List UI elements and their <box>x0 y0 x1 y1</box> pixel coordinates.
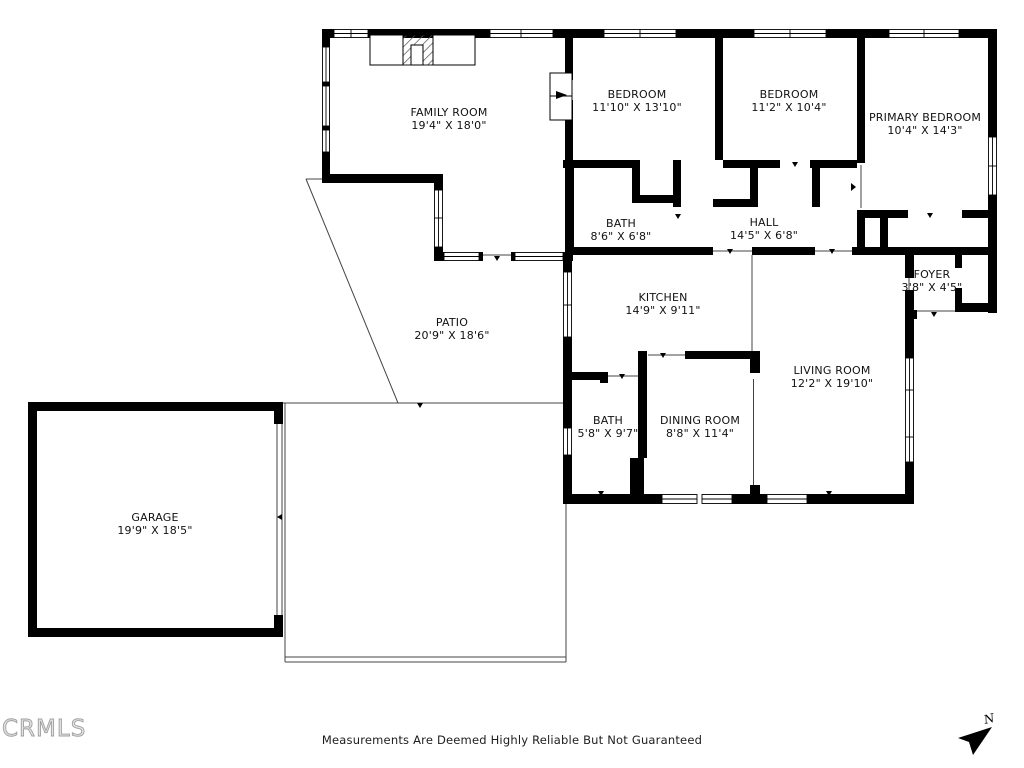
room-dims: 12'2" X 19'10" <box>791 377 874 390</box>
room-dims: 14'5" X 6'8" <box>730 229 798 242</box>
room-name: HALL <box>730 216 798 229</box>
room-dims: 14'9" X 9'11" <box>625 304 700 317</box>
fireplace <box>370 35 475 65</box>
room-name: LIVING ROOM <box>791 364 874 377</box>
room-label-living-room: LIVING ROOM 12'2" X 19'10" <box>791 364 874 390</box>
room-name: BATH <box>578 414 639 427</box>
room-label-bedroom-2: BEDROOM 11'2" X 10'4" <box>751 88 826 114</box>
room-label-primary-bedroom: PRIMARY BEDROOM 10'4" X 14'3" <box>869 111 981 137</box>
room-label-family-room: FAMILY ROOM 19'4" X 18'0" <box>410 106 487 132</box>
room-dims: 3'8" X 4'5" <box>902 281 963 294</box>
room-label-patio: PATIO 20'9" X 18'6" <box>414 316 489 342</box>
room-name: DINING ROOM <box>660 414 740 427</box>
room-name: BEDROOM <box>592 88 682 101</box>
north-label: N <box>981 711 996 727</box>
room-label-bedroom-1: BEDROOM 11'10" X 13'10" <box>592 88 682 114</box>
room-name: GARAGE <box>117 511 192 524</box>
room-name: KITCHEN <box>625 291 700 304</box>
room-label-kitchen: KITCHEN 14'9" X 9'11" <box>625 291 700 317</box>
room-label-dining-room: DINING ROOM 8'8" X 11'4" <box>660 414 740 440</box>
room-dims: 11'2" X 10'4" <box>751 101 826 114</box>
room-dims: 8'8" X 11'4" <box>660 427 740 440</box>
room-dims: 5'8" X 9'7" <box>578 427 639 440</box>
room-label-foyer: FOYER 3'8" X 4'5" <box>902 268 963 294</box>
patio-porch-outline <box>283 179 566 662</box>
room-dims: 20'9" X 18'6" <box>414 329 489 342</box>
disclaimer-text: Measurements Are Deemed Highly Reliable … <box>0 733 1024 747</box>
stair-nook <box>550 73 572 120</box>
floorplan-page: N FAMILY ROOM 19'4" X 18'0" BEDROOM 11'1… <box>0 0 1024 768</box>
room-name: BATH <box>591 217 652 230</box>
room-name: PRIMARY BEDROOM <box>869 111 981 124</box>
room-label-bath-2: BATH 5'8" X 9'7" <box>578 414 639 440</box>
room-name: FOYER <box>902 268 963 281</box>
walls-layer <box>28 29 997 637</box>
room-label-hall: HALL 14'5" X 6'8" <box>730 216 798 242</box>
room-label-bath-1: BATH 8'6" X 6'8" <box>591 217 652 243</box>
room-name: BEDROOM <box>751 88 826 101</box>
room-dims: 10'4" X 14'3" <box>869 124 981 137</box>
room-name: PATIO <box>414 316 489 329</box>
room-dims: 19'4" X 18'0" <box>410 119 487 132</box>
door-ticks <box>31 162 937 635</box>
room-dims: 11'10" X 13'10" <box>592 101 682 114</box>
room-dims: 19'9" X 18'5" <box>117 524 192 537</box>
room-dims: 8'6" X 6'8" <box>591 230 652 243</box>
room-label-garage: GARAGE 19'9" X 18'5" <box>117 511 192 537</box>
room-name: FAMILY ROOM <box>410 106 487 119</box>
